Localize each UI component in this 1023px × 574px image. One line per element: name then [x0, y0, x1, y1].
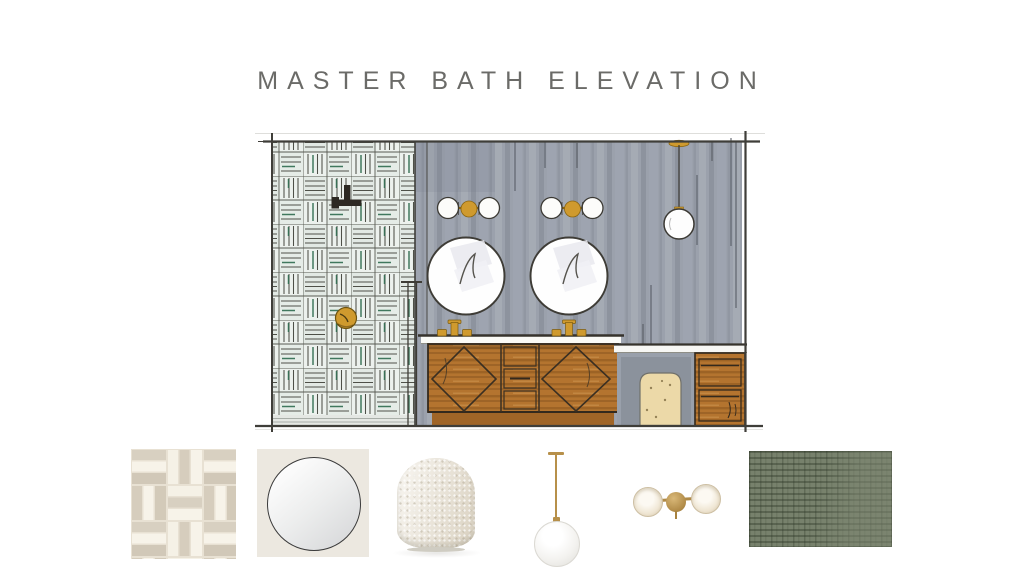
double-vanity	[418, 320, 624, 425]
pendant-globe	[534, 521, 580, 567]
product-tile-swatch	[131, 449, 236, 559]
sconce-backplate	[666, 492, 686, 512]
basketweave-tile-graphic	[131, 449, 236, 559]
wall-sconce-right	[541, 198, 603, 219]
tiled-shower-wall	[273, 142, 415, 425]
product-globe-pendant	[527, 450, 585, 566]
page-title: MASTER BATH ELEVATION	[0, 67, 1023, 96]
product-round-mirror	[257, 449, 369, 557]
elevation-sketch	[255, 128, 765, 443]
product-boucle-pouf	[388, 452, 485, 558]
pouf-body	[397, 458, 475, 548]
drawer-cabinet-right	[695, 353, 745, 426]
round-mirror-left	[428, 238, 505, 315]
product-rug-swatch	[749, 451, 892, 547]
shower-control	[336, 308, 357, 329]
sconce-stem	[675, 511, 677, 519]
pouf-under-counter	[640, 373, 681, 426]
pendant-stem	[555, 455, 557, 519]
makeup-counter	[614, 345, 747, 427]
pouf-base	[407, 547, 465, 552]
sconce-globe-right	[691, 484, 721, 514]
round-mirror-right	[531, 238, 608, 315]
mood-board: MASTER BATH ELEVATION	[0, 0, 1023, 574]
mirror-glass	[267, 457, 361, 551]
product-double-sconce	[626, 459, 730, 551]
sconce-globe-left	[633, 487, 663, 517]
wall-sconce-left	[438, 198, 500, 219]
